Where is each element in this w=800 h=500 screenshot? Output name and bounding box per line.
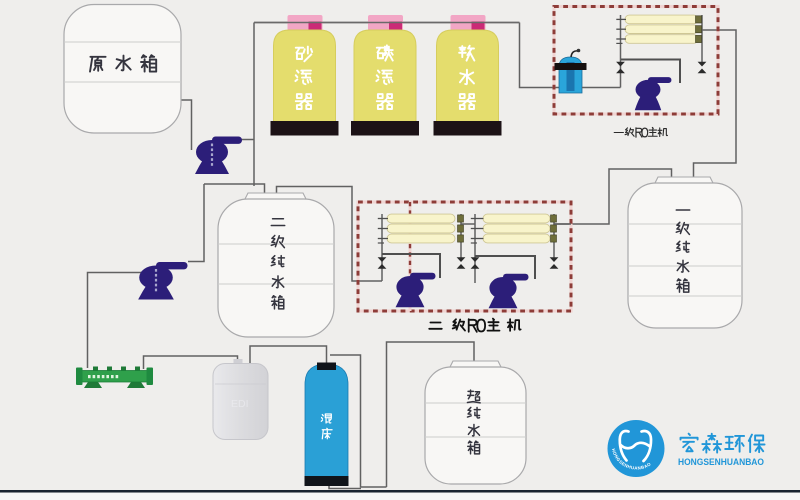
svg-text:HONGSENHUANBAO: HONGSENHUANBAO	[678, 457, 764, 467]
svg-text:EDI: EDI	[231, 398, 249, 410]
